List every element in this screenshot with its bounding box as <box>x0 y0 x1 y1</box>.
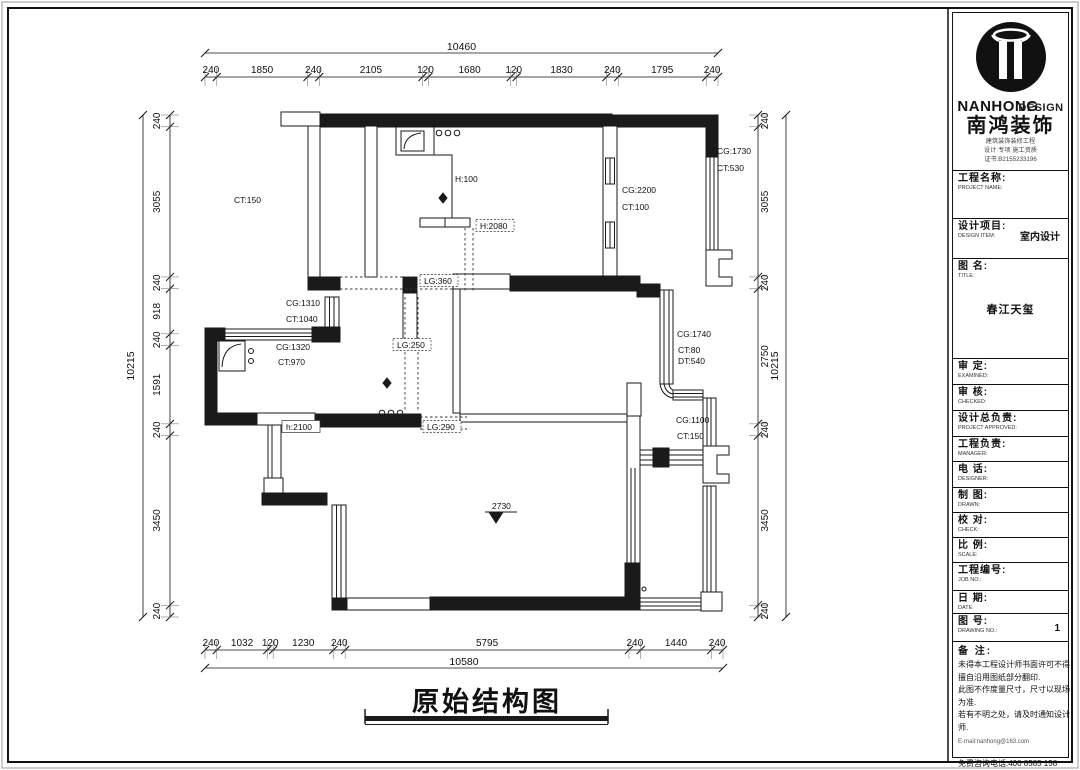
window-band <box>703 486 716 592</box>
dim-label: 240 <box>604 65 621 76</box>
tb-label-cn: 工程名称: <box>958 173 1068 185</box>
tb-value-design-item: 室内设计 <box>1020 228 1060 243</box>
tb-row-scale: 比 例:SCALE: <box>953 538 1068 563</box>
annotation-label: CG:2200 <box>622 185 656 195</box>
dim-label: 120 <box>505 65 522 76</box>
dim-label: 120 <box>262 638 279 649</box>
annotation-label: LG:250 <box>397 340 425 350</box>
tb-label-cn: 工程编号: <box>958 565 1068 577</box>
dim-label: 1230 <box>292 638 315 649</box>
wall-segment <box>312 327 340 342</box>
dim-label: 1795 <box>651 65 674 76</box>
tb-label-en: DRAWN: <box>958 502 1068 509</box>
dim-label: 3450 <box>152 509 163 532</box>
wall-segment <box>347 598 430 610</box>
wall-segment <box>205 413 257 425</box>
tb-label-cn: 制 图: <box>958 490 1068 502</box>
dim-label: 240 <box>760 274 771 291</box>
pier-block <box>703 446 729 483</box>
dim-label: 3055 <box>760 190 771 213</box>
annotation-label: CG:1310 <box>286 298 320 308</box>
annotation-label: CT:1040 <box>286 314 318 324</box>
wall-segment <box>612 115 710 127</box>
annotation-label: CT:150 <box>677 431 704 441</box>
wall-segment <box>625 563 640 610</box>
level-marker-icon <box>485 512 517 523</box>
floorplan-svg: 2401850240210512016801201830240179524010… <box>0 0 1080 770</box>
flue-shaft-icon <box>396 127 434 155</box>
window-band <box>325 297 339 327</box>
dim-label: 1830 <box>550 65 573 76</box>
tb-label-en: MANAGER: <box>958 451 1068 458</box>
tb-label-en: EXAMINED: <box>958 373 1068 380</box>
dim-label: 240 <box>760 602 771 619</box>
wall-segment <box>430 597 640 610</box>
dim-label: 240 <box>627 638 644 649</box>
dim-total-label: 10460 <box>447 41 476 53</box>
window-band <box>225 329 312 340</box>
dim-label: 3055 <box>152 190 163 213</box>
tb-label-en: DESIGNER: <box>958 476 1068 483</box>
tb-row-manager: 工程负责:MANAGER: <box>953 437 1068 462</box>
window-band <box>640 598 701 610</box>
tb-label-en: CHECKED: <box>958 399 1068 406</box>
brand-name-en: NANHONGDESIGN <box>953 100 1068 115</box>
dim-label: 120 <box>417 65 434 76</box>
notes-label: 备 注: <box>958 645 1065 659</box>
dim-label: 240 <box>152 274 163 291</box>
annotation-label: CT:530 <box>717 163 744 173</box>
pier-block <box>701 592 722 611</box>
annotation-label: DT:540 <box>678 356 705 366</box>
tb-label-cn: 审 定: <box>958 361 1068 373</box>
wall-segment <box>460 414 627 422</box>
tb-row-project-name: 工程名称:PROJECT NAME: <box>953 171 1068 219</box>
column-block <box>653 448 669 467</box>
dim-label: 240 <box>152 602 163 619</box>
wall-segment <box>365 126 377 277</box>
brand-subline: 证书:B2155233196 <box>956 155 1065 164</box>
tb-label-en: SCALE: <box>958 552 1068 559</box>
annotation-label: CG:1320 <box>276 342 310 352</box>
dim-label: 3450 <box>760 509 771 532</box>
dim-total-label: 10580 <box>449 656 478 668</box>
tb-label-en: PROJECT APPROVED: <box>958 425 1068 432</box>
tb-row-checked: 审 核:CHECKED: <box>953 385 1068 411</box>
note-line: 若有不明之处，请及时通知设计 <box>958 709 1065 722</box>
tb-label-cn: 比 例: <box>958 540 1068 552</box>
dim-label: 5795 <box>476 638 499 649</box>
annotation-label: H:2080 <box>480 221 508 231</box>
dim-label: 240 <box>203 65 220 76</box>
tb-row-date: 日 期:DATE: <box>953 591 1068 614</box>
wall-segment <box>281 112 320 126</box>
brand-subline: 设计·专项 施工资质 <box>956 146 1065 155</box>
dim-label: 918 <box>152 303 163 320</box>
tb-label-en: JOB NO.: <box>958 577 1068 584</box>
tb-row-drawing-no: 图 号:DRAWING NO.:1 <box>953 614 1068 642</box>
dim-label: 1032 <box>231 638 254 649</box>
title-block-rows: 工程名称:PROJECT NAME:设计项目:DESIGN ITEM:室内设计图… <box>953 171 1068 642</box>
dim-label: 240 <box>152 112 163 129</box>
wall-segment <box>453 274 510 289</box>
wall-segment <box>315 414 421 427</box>
tb-label-cn: 日 期: <box>958 593 1068 605</box>
dim-label: 2105 <box>360 65 383 76</box>
dim-total-label: 10215 <box>769 351 781 380</box>
wall-segment <box>262 493 327 505</box>
annotation-label: CT:150 <box>234 195 261 205</box>
annotation-label: 2730 <box>492 501 511 511</box>
wall-segment <box>205 328 217 425</box>
annotation-label: CG:1730 <box>717 146 751 156</box>
drain-icon <box>642 587 646 591</box>
wall-with-windows <box>603 126 617 277</box>
drawing-title: 原始结构图 <box>366 680 608 719</box>
tb-row-designer: 电 话:DESIGNER: <box>953 462 1068 488</box>
column-block <box>403 277 417 293</box>
tb-label-cn: 校 对: <box>958 515 1068 527</box>
dim-total-label: 10215 <box>125 351 137 380</box>
dim-label: 240 <box>704 65 721 76</box>
note-line: 为准. <box>958 697 1065 710</box>
tb-label-en: PROJECT NAME: <box>958 185 1068 192</box>
tb-label-cn: 工程负责: <box>958 439 1068 451</box>
annotation-label: CT:970 <box>278 357 305 367</box>
tb-label-en: TITLE: <box>958 273 1068 280</box>
wall-segment <box>332 598 347 610</box>
annotation-label: H:100 <box>455 174 478 184</box>
tb-value-drawing-no: 1 <box>1054 623 1060 634</box>
brand-subline: 建筑装饰装修工程 <box>956 137 1065 146</box>
annotation-label: LG:290 <box>427 422 455 432</box>
tb-label-cn: 图 号: <box>958 616 1068 628</box>
tb-row-drawing-title: 图 名:TITLE:春江天玺 <box>953 259 1068 359</box>
annotation-label: LG:360 <box>424 276 452 286</box>
wall-with-windows <box>268 425 281 478</box>
dim-label: 1850 <box>251 65 274 76</box>
tb-row-design-item: 设计项目:DESIGN ITEM:室内设计 <box>953 219 1068 259</box>
company-logo-block: NANHONGDESIGN 南鸿装饰 建筑装饰装修工程 设计·专项 施工资质 证… <box>953 13 1068 171</box>
dim-label: 240 <box>760 112 771 129</box>
tb-row-examined: 审 定:EXAMINED: <box>953 359 1068 385</box>
tb-row-job-no: 工程编号:JOB NO.: <box>953 563 1068 591</box>
annotation-label: CG:1100 <box>676 415 710 425</box>
tb-label-cn: 审 核: <box>958 387 1068 399</box>
wall-segment <box>205 328 225 341</box>
annotation-label: CT:80 <box>678 345 700 355</box>
brand-name-cn: 南鸿装饰 <box>953 115 1068 137</box>
note-line: 此图不作度量尺寸，尺寸以现场 <box>958 684 1065 697</box>
vent-circles-icon <box>436 130 460 136</box>
tb-row-project-approved: 设计总负责:PROJECT APPROVED: <box>953 411 1068 437</box>
wall-with-windows <box>332 505 346 598</box>
diamond-marker-icon <box>383 378 391 388</box>
diamond-marker-icon <box>439 193 447 203</box>
wall-with-windows <box>627 416 640 563</box>
tb-label-en: DRAWING NO.: <box>958 628 1068 635</box>
dim-label: 1440 <box>665 638 688 649</box>
wall-segment <box>627 383 641 416</box>
note-line: E-mail:nanhong@163.com <box>958 736 1065 749</box>
annotation-label: CT:100 <box>622 202 649 212</box>
title-block-notes: 备 注: 未得本工程设计师书面许可不得擅自沿用图纸部分翻印.此图不作度量尺寸，尺… <box>953 642 1068 769</box>
dim-label: 240 <box>203 638 220 649</box>
tb-label-cn: 设计总负责: <box>958 413 1068 425</box>
tb-row-drawn: 制 图:DRAWN: <box>953 488 1068 513</box>
dim-label: 240 <box>760 421 771 438</box>
dim-label: 240 <box>152 331 163 348</box>
wall-segment <box>510 276 640 291</box>
tb-label-en: DATE: <box>958 605 1068 612</box>
tb-label-cn: 电 话: <box>958 464 1068 476</box>
wall-segment <box>434 155 452 218</box>
tb-value-drawing-title: 春江天玺 <box>953 301 1068 317</box>
wall-segment <box>453 289 460 413</box>
dim-label: 240 <box>709 638 726 649</box>
title-block: NANHONGDESIGN 南鸿装饰 建筑装饰装修工程 设计·专项 施工资质 证… <box>952 12 1069 758</box>
tb-row-check: 校 对:CHECK: <box>953 513 1068 538</box>
wall-segment <box>264 478 283 493</box>
tb-label-en: CHECK: <box>958 527 1068 534</box>
wall-segment <box>308 277 340 290</box>
wall-segment <box>420 218 470 227</box>
dim-label: 240 <box>305 65 322 76</box>
dim-label: 1591 <box>152 373 163 396</box>
note-line: 擅自沿用图纸部分翻印. <box>958 672 1065 685</box>
wall-segment <box>637 284 660 297</box>
note-line: 师. <box>958 722 1065 735</box>
wall-segment <box>308 126 320 289</box>
cad-floorplan-page: 2401850240210512016801201830240179524010… <box>0 0 1080 770</box>
annotation-label: CG:1740 <box>677 329 711 339</box>
sink-fixture-icon <box>219 341 254 371</box>
bay-window <box>706 250 732 286</box>
dim-label: 240 <box>152 421 163 438</box>
wall-segment <box>320 114 612 127</box>
dim-label: 240 <box>331 638 348 649</box>
dim-label: 1680 <box>458 65 481 76</box>
hotline-phone: 免费咨询电话:400 8585 158 <box>958 758 1065 769</box>
tb-label-cn: 图 名: <box>958 261 1068 273</box>
annotation-label: h:2100 <box>286 422 312 432</box>
note-line: 未得本工程设计师书面许可不得 <box>958 659 1065 672</box>
company-logo-icon <box>972 21 1050 93</box>
